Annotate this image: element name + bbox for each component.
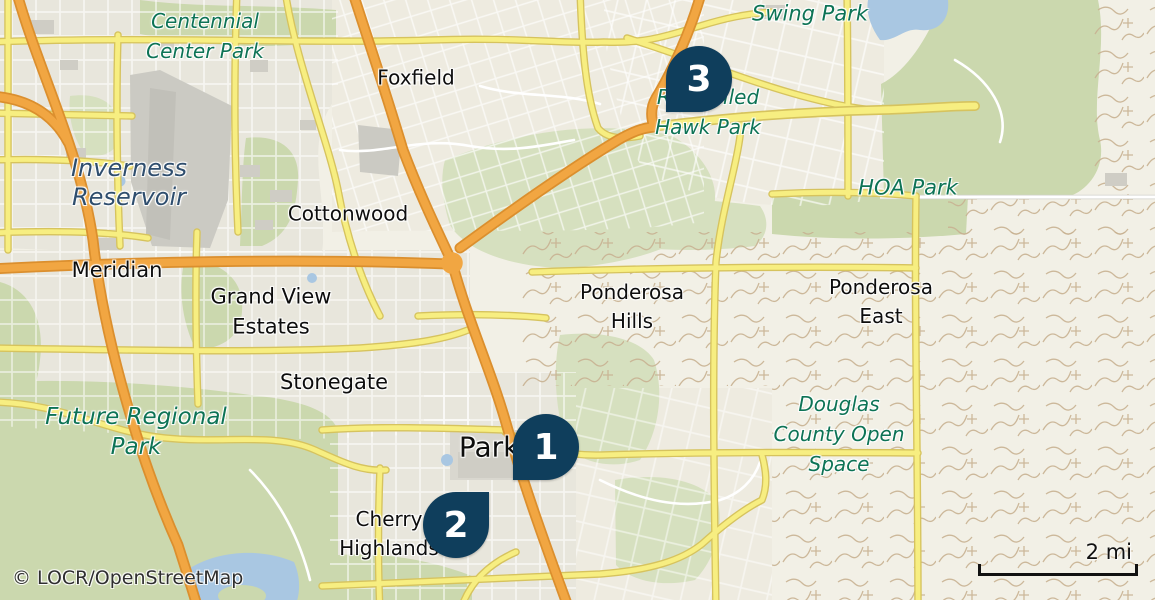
map-label-hoa-park: HOA Park: [858, 172, 958, 204]
map-label-cottonwood: Cottonwood: [288, 200, 408, 229]
label-line: Inverness: [71, 154, 187, 183]
map-label-grand-view-estates: Grand View Estates: [211, 282, 332, 343]
label-line: Ponderosa: [829, 273, 933, 302]
label-line: HOA Park: [858, 172, 958, 204]
label-line: Hawk Park: [655, 112, 761, 142]
label-line: Stonegate: [280, 367, 388, 397]
scale-label: 2 mi: [1032, 540, 1132, 564]
label-line: Reservoir: [71, 183, 187, 212]
label-line: County Open: [773, 419, 904, 449]
map-label-future-regional-park: Future Regional Park: [45, 403, 227, 463]
label-line: Future Regional: [45, 403, 227, 433]
label-line: Highlands: [339, 534, 439, 563]
map-pin-3[interactable]: 3: [666, 46, 732, 112]
map-pin-1-number: 1: [533, 427, 558, 468]
label-line: Swing Park: [752, 0, 868, 30]
map-label-douglas-county-open-space: Douglas County Open Space: [773, 389, 904, 479]
map-label-swing-park: Swing Park: [752, 0, 868, 30]
label-line: East: [829, 302, 933, 331]
map-attribution: © LOCR/OpenStreetMap: [12, 567, 243, 589]
label-line: Cottonwood: [288, 200, 408, 229]
map-label-meridian: Meridian: [72, 255, 163, 285]
map-label-inverness-reservoir: Inverness Reservoir: [71, 154, 187, 212]
label-line: Foxfield: [377, 64, 454, 93]
label-line: Park: [45, 433, 227, 463]
label-line: Centennial: [146, 6, 264, 36]
map-viewport[interactable]: Centennial Center Park Swing Park Red-ta…: [0, 0, 1155, 600]
map-pin-2-number: 2: [443, 505, 468, 546]
map-label-ponderosa-east: Ponderosa East: [829, 273, 933, 331]
map-canvas: [0, 0, 1155, 600]
map-label-centennial-center-park: Centennial Center Park: [146, 6, 264, 66]
label-line: Grand View: [211, 282, 332, 312]
label-line: Douglas: [773, 389, 904, 419]
map-pin-2[interactable]: 2: [423, 492, 489, 558]
label-line: Estates: [211, 312, 332, 342]
map-label-stonegate: Stonegate: [280, 367, 388, 397]
map-label-ponderosa-hills: Ponderosa Hills: [580, 278, 684, 336]
label-line: Ponderosa: [580, 278, 684, 307]
label-line: Space: [773, 449, 904, 479]
map-pin-1[interactable]: 1: [513, 414, 579, 480]
map-pin-3-number: 3: [686, 59, 711, 100]
label-line: Center Park: [146, 36, 264, 66]
label-line: Meridian: [72, 255, 163, 285]
label-line: Hills: [580, 307, 684, 336]
map-label-foxfield: Foxfield: [377, 64, 454, 93]
scale-bar: [978, 564, 1138, 576]
